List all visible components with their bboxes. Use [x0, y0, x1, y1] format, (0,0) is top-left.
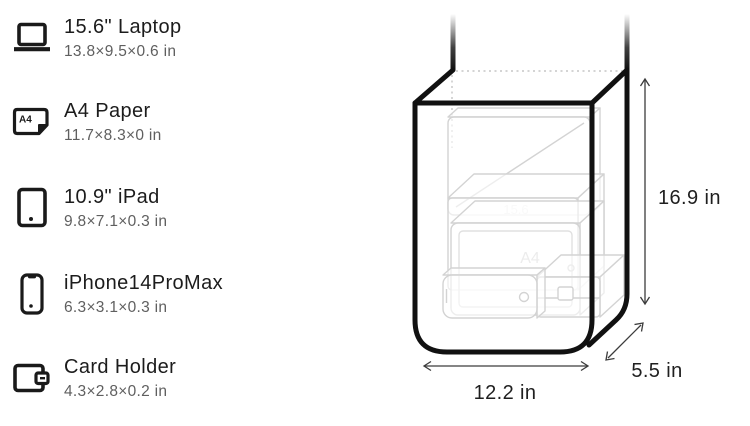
depth-label: 5.5 in [631, 360, 682, 382]
height-label: 16.9 in [658, 187, 721, 209]
depth-dimension: 5.5 in [606, 323, 683, 382]
width-dimension: 12.2 in [424, 362, 588, 405]
bag-wireframe-diagram: 15.6 A4 [0, 0, 750, 426]
width-label: 12.2 in [474, 382, 537, 404]
card-holder-outline [537, 255, 624, 317]
iphone-outline [443, 268, 545, 318]
size-comparison-panel: 15.6" Laptop 13.8×9.5×0.6 in A4 A4 Paper… [0, 0, 750, 426]
height-dimension: 16.9 in [641, 79, 721, 304]
shoulder-straps [451, 14, 630, 70]
